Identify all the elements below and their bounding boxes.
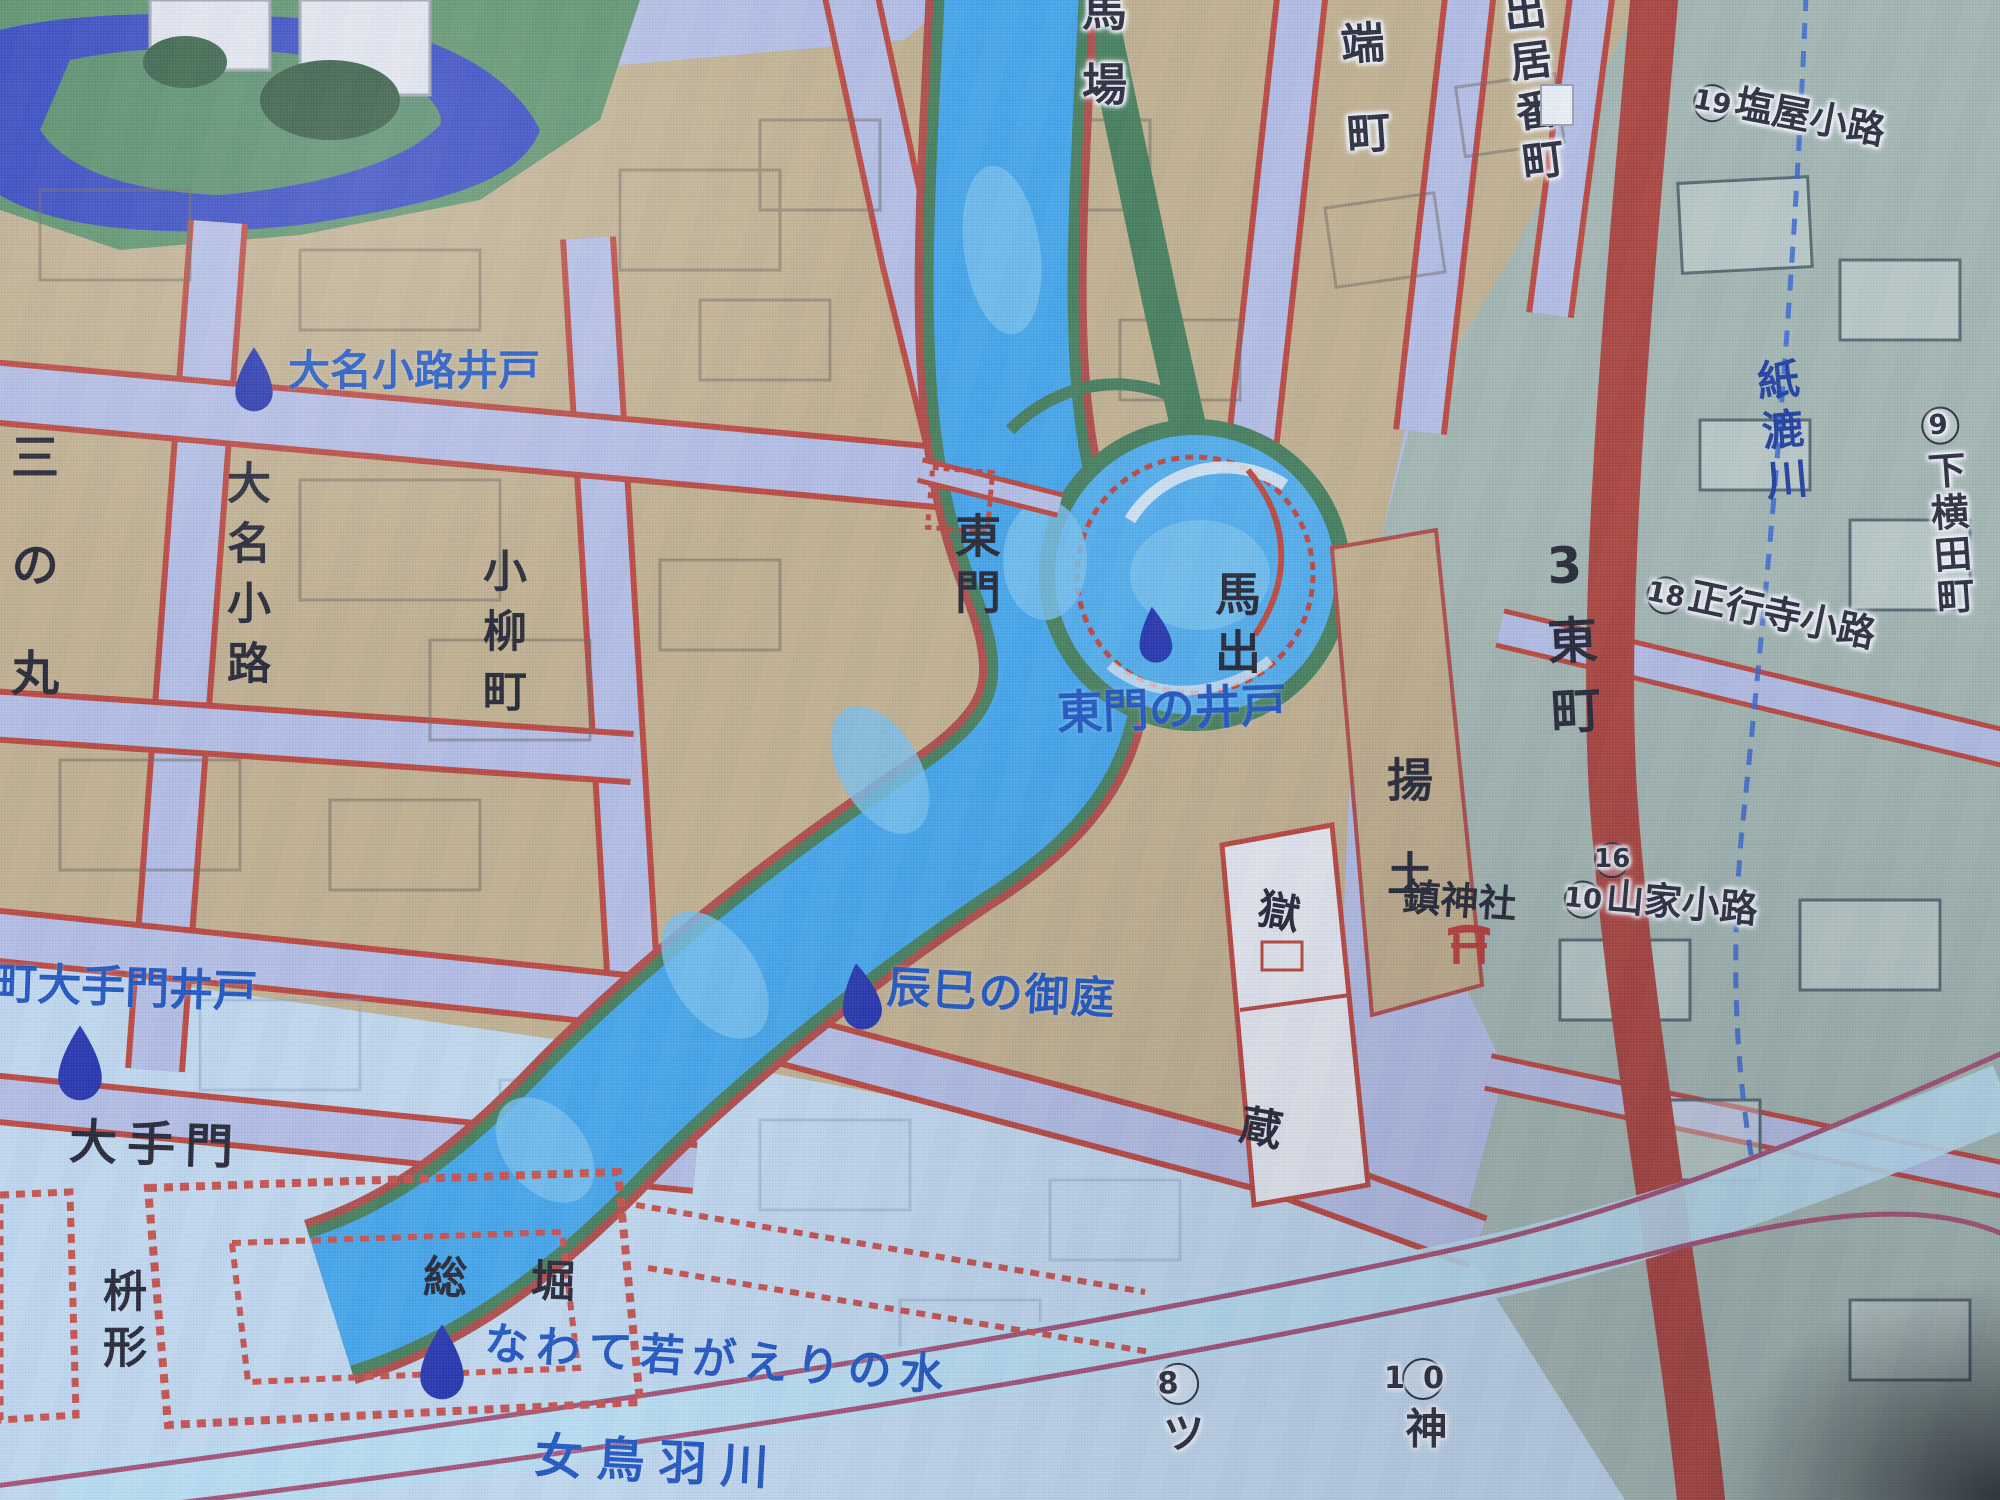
label-ote-mon: 大手門 [68, 1118, 244, 1172]
label-badge-16: 16 [1594, 838, 1634, 878]
label-hashi-machi: 端町 [1334, 19, 1390, 202]
circled-number-18-icon: 18 [1643, 572, 1688, 617]
circled-number-10-icon: 10 [1562, 879, 1603, 920]
label-badge-10-kami: 10神 [1402, 1358, 1444, 1466]
label-baba: 馬場 [1078, 0, 1123, 136]
well-drop-icon-otemon [52, 1022, 108, 1110]
label-badge-8-tsu-text: ツ [1156, 1410, 1208, 1474]
label-goku: 獄 [1255, 888, 1304, 937]
label-tatsumi-no-oniwa: 辰巳の御庭 [886, 966, 1118, 1022]
screen-photo: 三の丸 大名小路井戸 大名小路 小柳町 馬場 東門 馬出 東門の井戸 端町 出居… [0, 0, 2000, 1500]
label-higashimon-well: 東門の井戸 [1056, 682, 1287, 736]
label-kura: 蔵 [1237, 1104, 1286, 1153]
circled-number-8-icon: 8 [1156, 1362, 1200, 1406]
label-so-bori: 総 堀 [422, 1256, 585, 1306]
label-kamisuki-gawa: 紙漉川 [1752, 356, 1807, 509]
circled-number-16-icon: 16 [1594, 842, 1630, 878]
label-metoba-gawa: 女鳥羽川 [533, 1432, 783, 1493]
well-drop-icon-daimyo-koji [230, 346, 278, 418]
circled-number-19-icon: 19 [1690, 81, 1735, 126]
label-daimyo-koji-street: 大名小路 [222, 460, 266, 700]
label-masugata: 枡形 [98, 1268, 142, 1380]
label-sannomaru: 三の丸 [6, 432, 54, 756]
well-drop-icon-nawate [414, 1318, 470, 1412]
label-chin-jinja: 鎮神社 [1401, 878, 1517, 924]
label-higashi-mon: 東門 [952, 512, 998, 624]
screen-edge-white-sliver [1540, 84, 1574, 126]
label-higashi-machi: 3東町 [1538, 535, 1599, 755]
map-artwork [0, 0, 2000, 1500]
circled-number-10b-icon: 10 [1402, 1358, 1444, 1400]
label-koyanagi-cho: 小柳町 [478, 548, 522, 728]
label-umadashi: 馬出 [1212, 570, 1258, 686]
torii-shrine-icon [1446, 920, 1492, 966]
well-drop-icon-higashimon [1131, 602, 1180, 672]
historical-map-canvas[interactable]: 三の丸 大名小路井戸 大名小路 小柳町 馬場 東門 馬出 東門の井戸 端町 出居… [0, 0, 2000, 1500]
label-daimyo-koji-well: 大名小路井戸 [288, 350, 540, 392]
label-badge-10-kami-text: 神 [1399, 1406, 1448, 1466]
circled-number-9-icon: 9 [1920, 405, 1961, 446]
label-badge-8-tsu: 8ツ [1156, 1362, 1204, 1474]
label-machi-otemon-well: 町大手門井戸 [0, 962, 258, 1015]
